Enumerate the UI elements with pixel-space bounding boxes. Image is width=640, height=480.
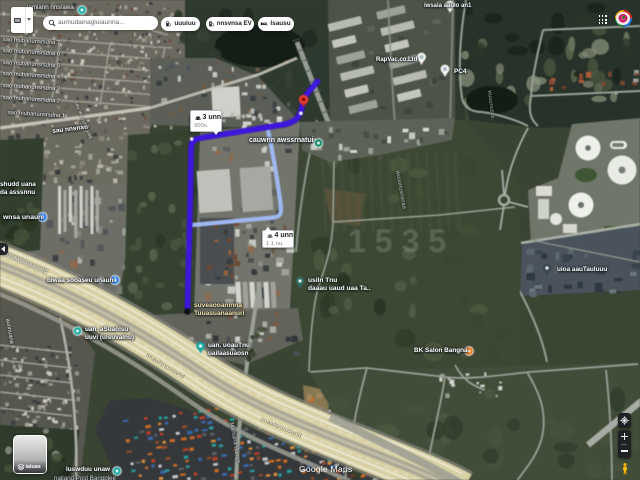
svg-text:1535: 1535: [348, 223, 455, 259]
